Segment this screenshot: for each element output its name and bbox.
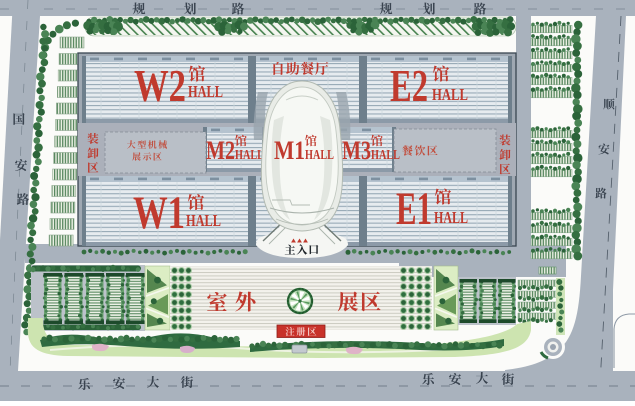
svg-text:M2: M2 — [206, 136, 235, 165]
svg-text:HALL: HALL — [188, 82, 223, 101]
svg-text:HALL: HALL — [186, 211, 221, 230]
svg-text:M1: M1 — [274, 136, 305, 165]
svg-text:E2: E2 — [390, 60, 428, 111]
svg-text:HALL: HALL — [305, 147, 334, 162]
svg-text:E1: E1 — [396, 183, 432, 235]
svg-text:HALL: HALL — [432, 85, 468, 104]
svg-text:W1: W1 — [133, 187, 185, 239]
svg-text:M3: M3 — [342, 136, 371, 165]
svg-text:HALL: HALL — [434, 208, 468, 227]
svg-text:W2: W2 — [134, 60, 186, 111]
svg-text:HALL: HALL — [371, 147, 400, 162]
svg-text:HALL: HALL — [235, 147, 264, 162]
